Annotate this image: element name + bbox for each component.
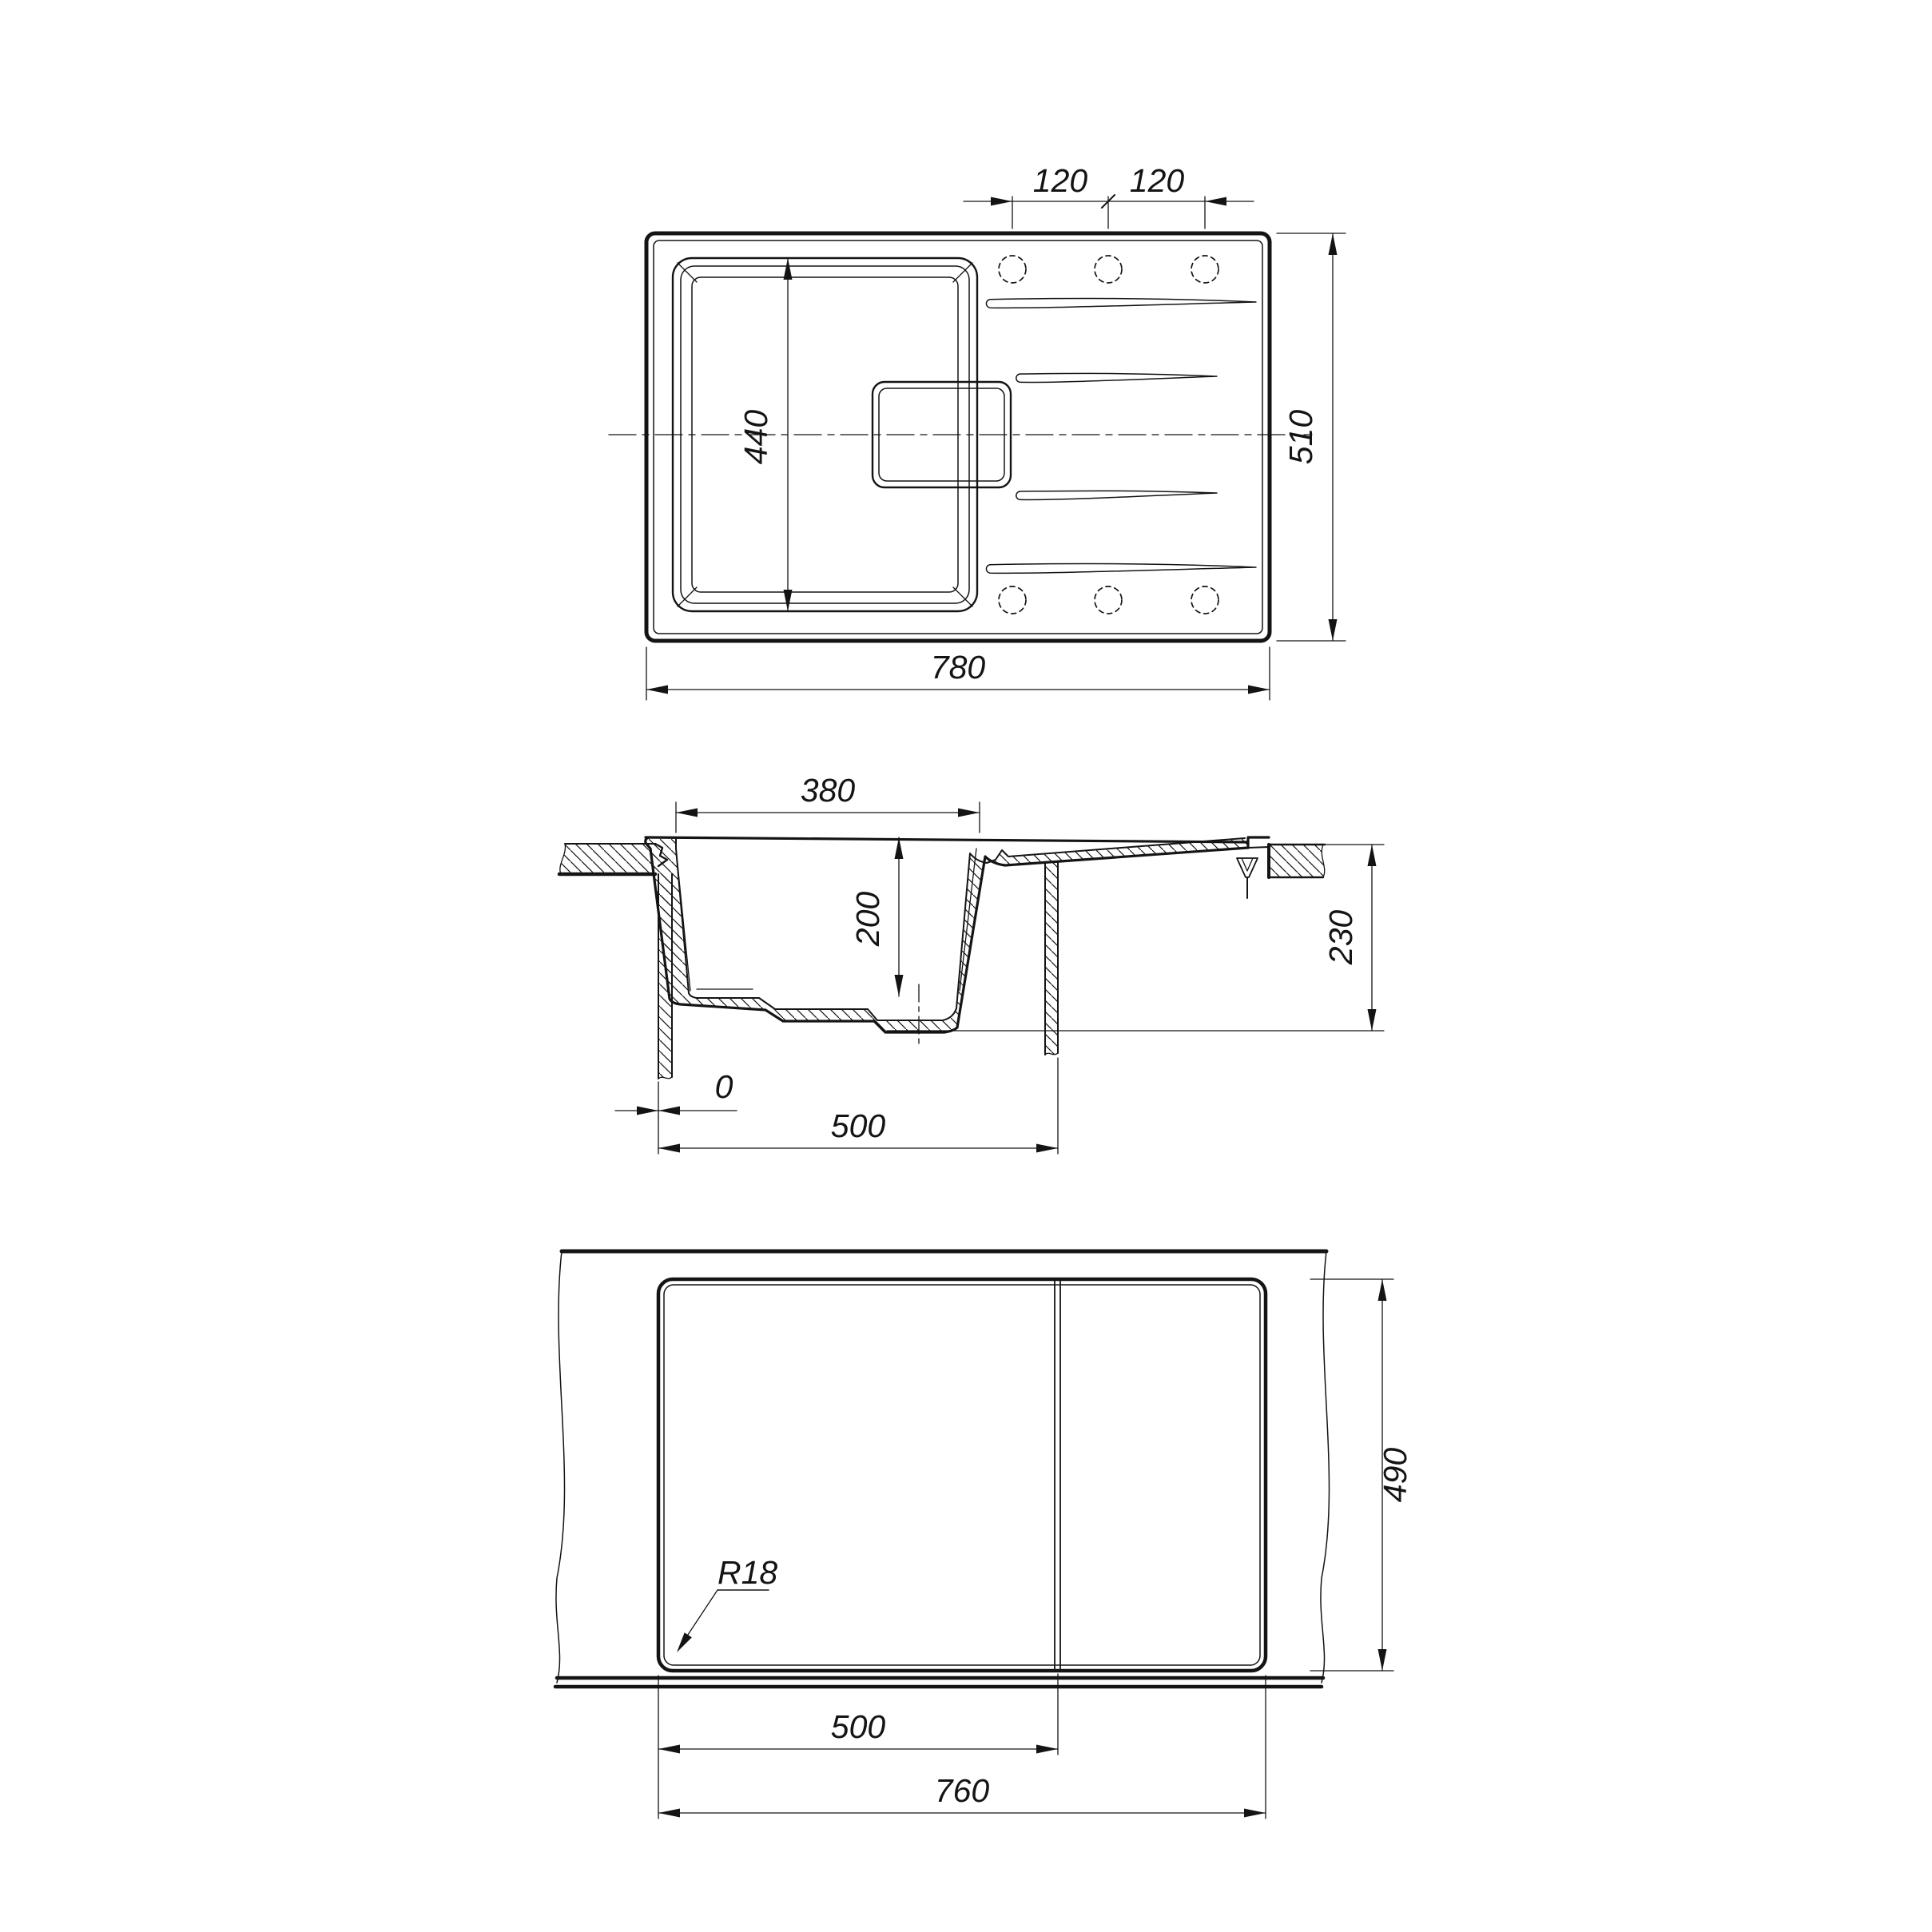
dim-bowl-depth-label: 200	[849, 892, 886, 948]
corner-radius-label: R18	[718, 1554, 777, 1591]
sink-dimension-drawing: 120 120 510 780 440	[0, 0, 1932, 1932]
dim-overall-height-label: 230	[1322, 910, 1359, 966]
dim-hole-spacing-left-label: 120	[1033, 162, 1088, 199]
countertop-right-section	[1269, 845, 1325, 877]
dim-cabinet-width-label: 500	[831, 1107, 886, 1144]
countertop-left-section	[559, 844, 655, 874]
dim-bowl-section-width-label: 500	[831, 1708, 886, 1745]
cabinet-wall-right	[1045, 862, 1058, 1055]
dim-overall-depth-label: 510	[1282, 410, 1319, 465]
dim-cutout-width-label: 760	[935, 1772, 990, 1809]
dim-hole-spacing-right-label: 120	[1130, 162, 1185, 199]
dim-bowl-opening-label: 380	[801, 772, 856, 809]
dim-front-offset-label: 0	[715, 1068, 733, 1105]
dim-cutout-depth-label: 490	[1377, 1448, 1413, 1503]
dim-bowl-length-label: 440	[737, 410, 774, 465]
dim-overall-width-label: 780	[931, 649, 986, 686]
